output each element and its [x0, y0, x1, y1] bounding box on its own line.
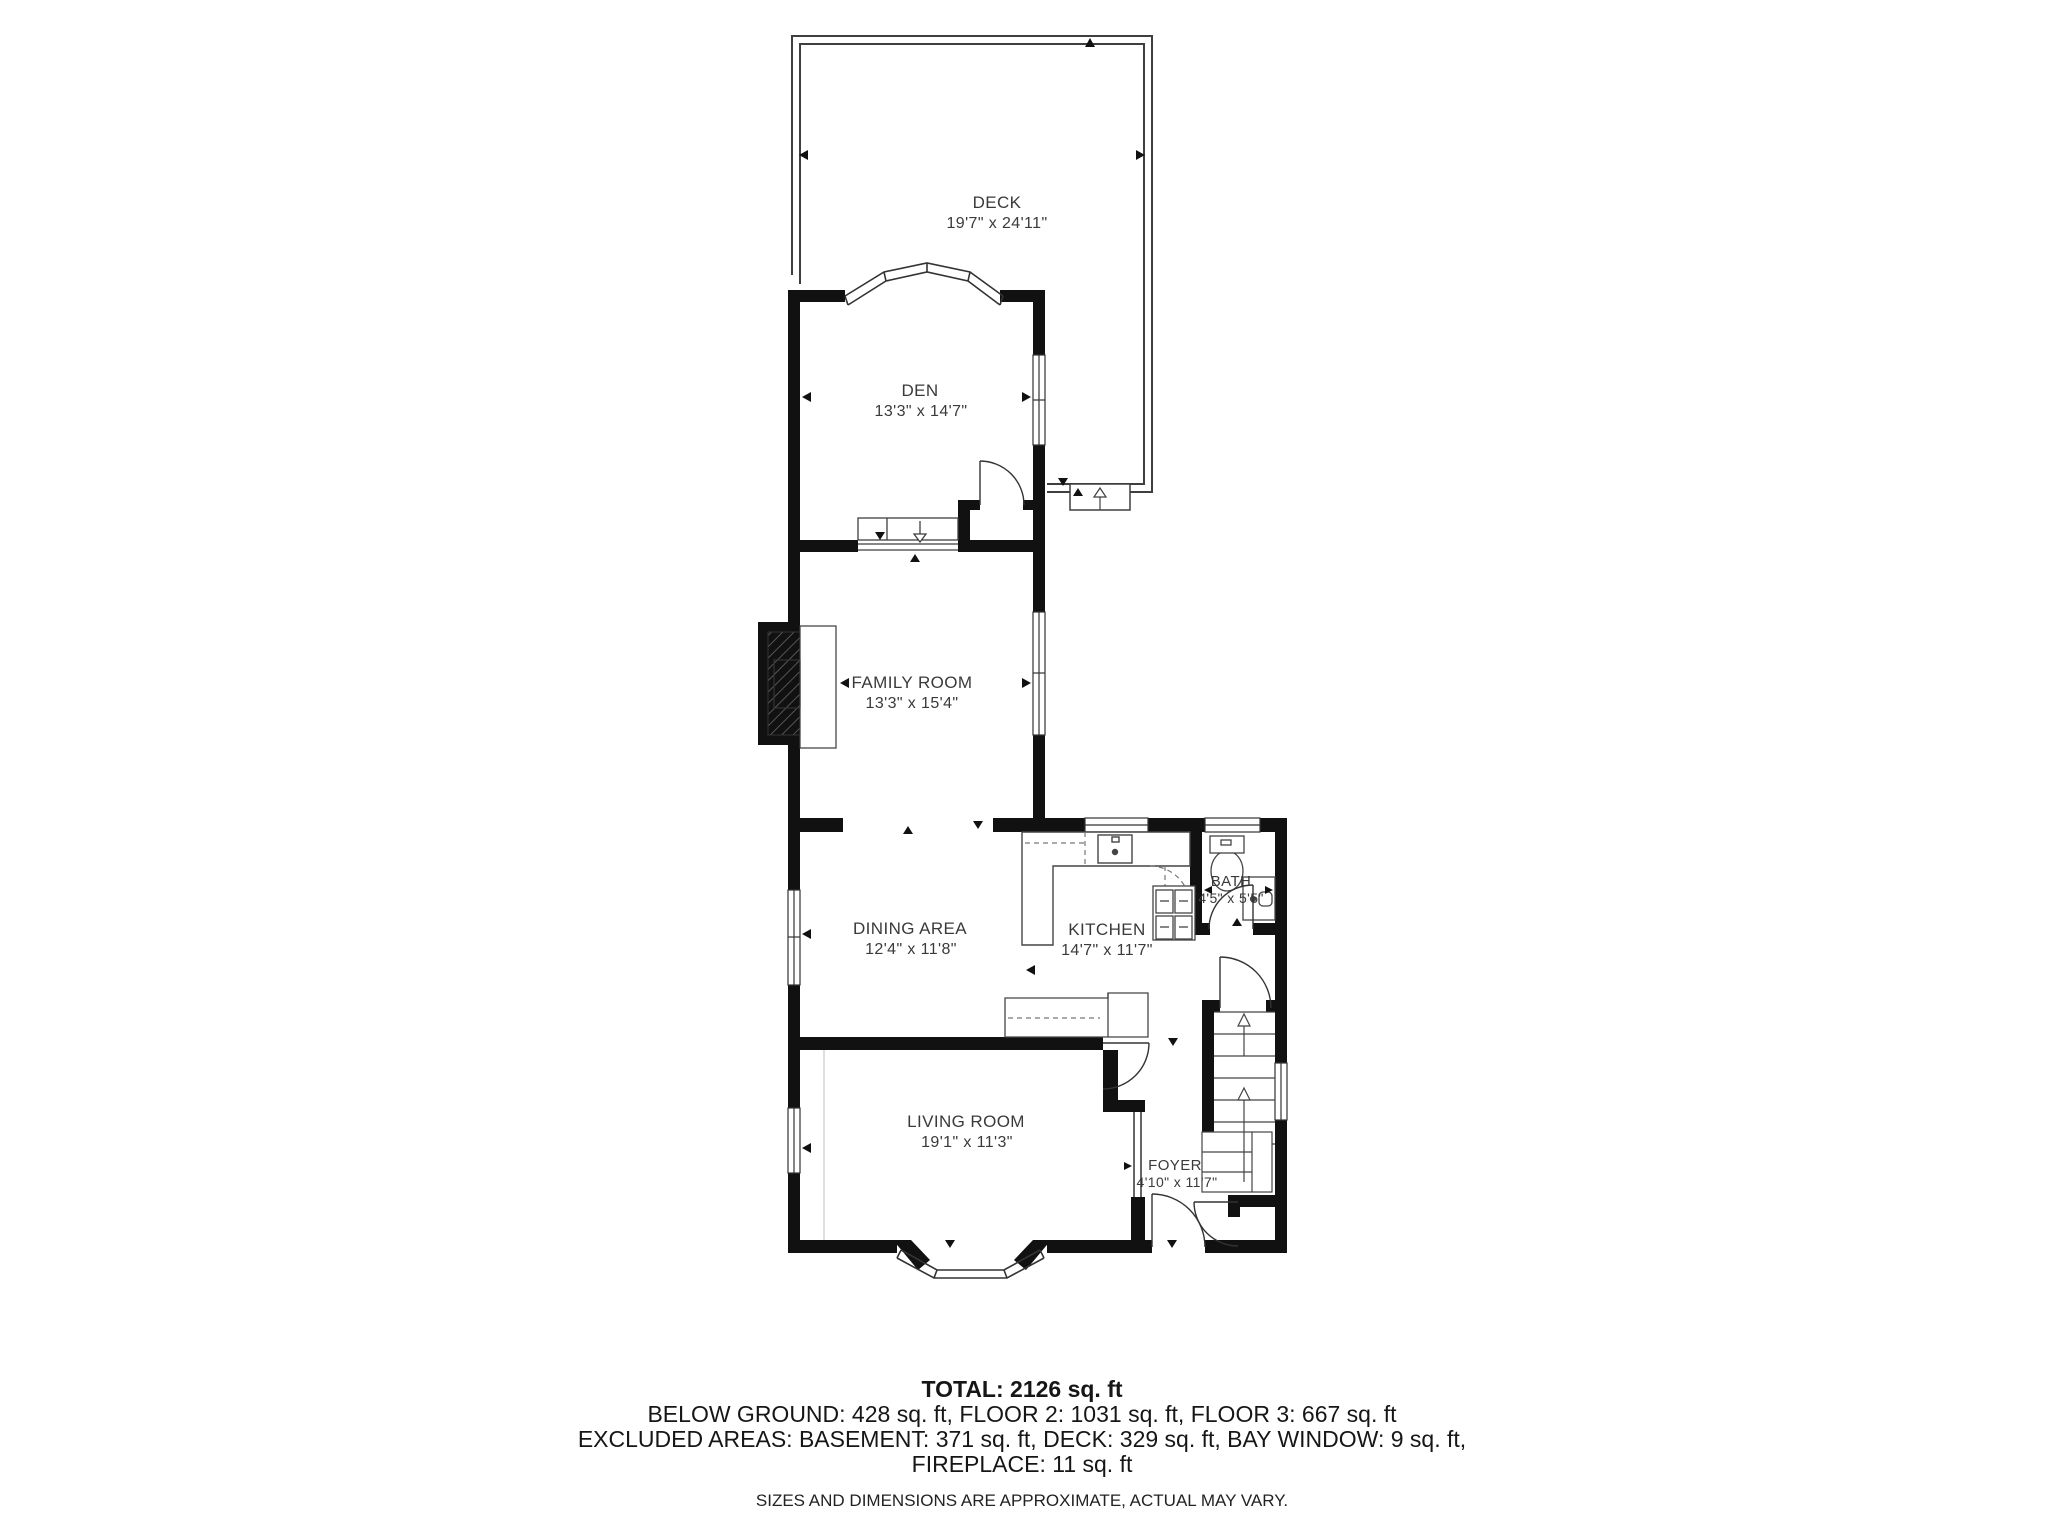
kitchen-left-arrow-icon: [1026, 965, 1035, 975]
kitchen-sink-drain: [1113, 850, 1118, 855]
total-area-text: TOTAL: 2126 sq. ft: [322, 1376, 1722, 1402]
kitchen-top-window: [1085, 818, 1148, 832]
deck-top-arrow-icon: [1085, 38, 1095, 47]
stairs-up-arrow2-icon: [1238, 1088, 1250, 1100]
room-label-den: DEN 13'3" x 14'7": [875, 381, 968, 420]
deck-name: DECK: [973, 193, 1022, 212]
den-name: DEN: [901, 381, 938, 400]
living-room-dims: 19'1" x 11'3": [921, 1134, 1013, 1151]
family-room-dims: 13'3" x 15'4": [866, 695, 959, 712]
area-summary: TOTAL: 2126 sq. ft BELOW GROUND: 428 sq.…: [322, 1376, 1722, 1511]
wall-living-top: [788, 1037, 1103, 1050]
wall-den-bottom-a: [800, 540, 858, 552]
wall-closet-left-stub: [1228, 1195, 1240, 1217]
wall-kitchen-wing-top-a: [788, 818, 843, 832]
wall-den-closet-top-a: [958, 500, 980, 510]
kitchen-sink-faucet: [1112, 837, 1119, 842]
wall-stairs-left: [1202, 1012, 1214, 1132]
wall-bath-bottom-b: [1253, 923, 1275, 935]
wall-foyer-pillar-stub: [1103, 1100, 1145, 1112]
excluded-areas-text: EXCLUDED AREAS: BASEMENT: 371 sq. ft, DE…: [322, 1427, 1722, 1452]
den-step-down: [858, 518, 958, 550]
bath-name: BATH: [1211, 873, 1252, 890]
dining-area-dims: 12'4" x 11'8": [865, 941, 957, 958]
kitchen-door-down-icon: [1168, 1038, 1178, 1046]
family-room-name: FAMILY ROOM: [852, 673, 973, 692]
family-opening-down-icon: [973, 821, 983, 829]
deck-outline: [792, 36, 1152, 492]
family-left-arrow-icon: [840, 678, 849, 688]
hall-stairs-door: [1220, 957, 1271, 1008]
room-label-living-room: LIVING ROOM 19'1" x 11'3": [907, 1112, 1025, 1151]
family-right-arrow-icon: [1022, 678, 1031, 688]
den-step-up-icon: [910, 554, 920, 562]
bay-opening-down-icon: [945, 1240, 955, 1248]
wall-bottom-b: [1047, 1240, 1152, 1253]
living-room-name: LIVING ROOM: [907, 1112, 1025, 1131]
stairs-up-arrow-icon: [1238, 1014, 1250, 1026]
room-label-kitchen: KITCHEN 14'7" x 11'7": [1061, 920, 1153, 959]
excluded-areas-text2: FIREPLACE: 11 sq. ft: [322, 1452, 1722, 1477]
den-right-window: [1033, 355, 1045, 445]
kitchen-stove: [1153, 886, 1195, 940]
bath-door-up-icon: [1232, 918, 1242, 926]
wall-hall-stub-a: [1202, 1000, 1220, 1012]
wall-den-bottom-b: [958, 540, 1045, 552]
floor-plan-drawing: DECK 19'7" x 24'11" DEN 13'3" x 14'7" FA…: [0, 0, 2048, 1536]
room-label-deck: DECK 19'7" x 24'11": [946, 193, 1047, 232]
deck-inner-line: [800, 44, 1144, 484]
living-left-window: [788, 1108, 800, 1173]
dining-buffet: [1005, 993, 1148, 1037]
bath-dims: 4'5" x 5'5": [1198, 890, 1264, 906]
wall-bottom-a: [788, 1240, 897, 1253]
foyer-dims: 4'10" x 11'7": [1137, 1174, 1218, 1190]
entry-opening-down-icon: [1167, 1240, 1177, 1248]
living-left-arrow-icon: [802, 1143, 811, 1153]
room-label-dining-area: DINING AREA 12'4" x 11'8": [853, 919, 967, 958]
wall-right-exterior: [1275, 818, 1287, 1253]
kitchen-dims: 14'7" x 11'7": [1061, 942, 1153, 959]
dining-area-name: DINING AREA: [853, 919, 967, 938]
dining-left-arrow-icon: [802, 929, 811, 939]
den-dims: 13'3" x 14'7": [875, 403, 968, 420]
den-bay-window: [845, 263, 1003, 305]
foyer-name: FOYER: [1148, 1157, 1202, 1174]
foyer-left-arrow-icon: [1124, 1162, 1132, 1170]
fireplace: [758, 622, 836, 748]
kitchen-name: KITCHEN: [1068, 920, 1145, 939]
disclaimer-text: SIZES AND DIMENSIONS ARE APPROXIMATE, AC…: [322, 1491, 1722, 1511]
floors-area-text: BELOW GROUND: 428 sq. ft, FLOOR 2: 1031 …: [322, 1402, 1722, 1427]
family-opening-up-icon: [903, 826, 913, 834]
floor-plan-page: DECK 19'7" x 24'11" DEN 13'3" x 14'7" FA…: [0, 0, 2048, 1536]
room-label-family-room: FAMILY ROOM 13'3" x 15'4": [852, 673, 973, 712]
deck-dims: 19'7" x 24'11": [946, 215, 1047, 232]
bath-top-window: [1205, 818, 1260, 832]
deck-steps: [1070, 484, 1130, 510]
deck-outer-line: [792, 36, 1152, 492]
den-left-arrow-icon: [802, 392, 811, 402]
stairwell-right-window: [1275, 1063, 1287, 1120]
fireplace-hatch: [768, 632, 800, 735]
wall-den-top-left: [788, 290, 845, 302]
wall-foyer-lower: [1131, 1197, 1145, 1247]
dining-left-window: [788, 890, 800, 985]
wall-den-closet-top-b: [1023, 500, 1045, 510]
wall-bottom-c: [1205, 1240, 1287, 1253]
fireplace-hearth: [800, 626, 836, 748]
family-room-right-window: [1033, 612, 1045, 735]
den-closet-door: [980, 461, 1024, 505]
den-right-arrow-icon: [1022, 392, 1031, 402]
